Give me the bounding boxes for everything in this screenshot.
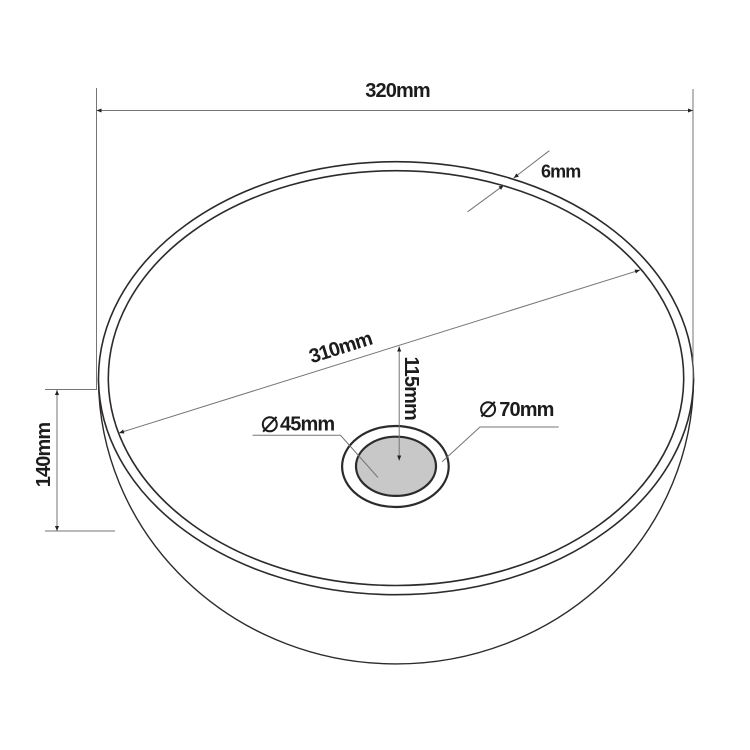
svg-text:140mm: 140mm xyxy=(33,423,55,488)
svg-text:320mm: 320mm xyxy=(365,80,430,102)
svg-text:45mm: 45mm xyxy=(280,414,334,436)
svg-text:6mm: 6mm xyxy=(541,162,580,182)
svg-text:115mm: 115mm xyxy=(400,357,422,420)
svg-text:70mm: 70mm xyxy=(499,399,553,421)
